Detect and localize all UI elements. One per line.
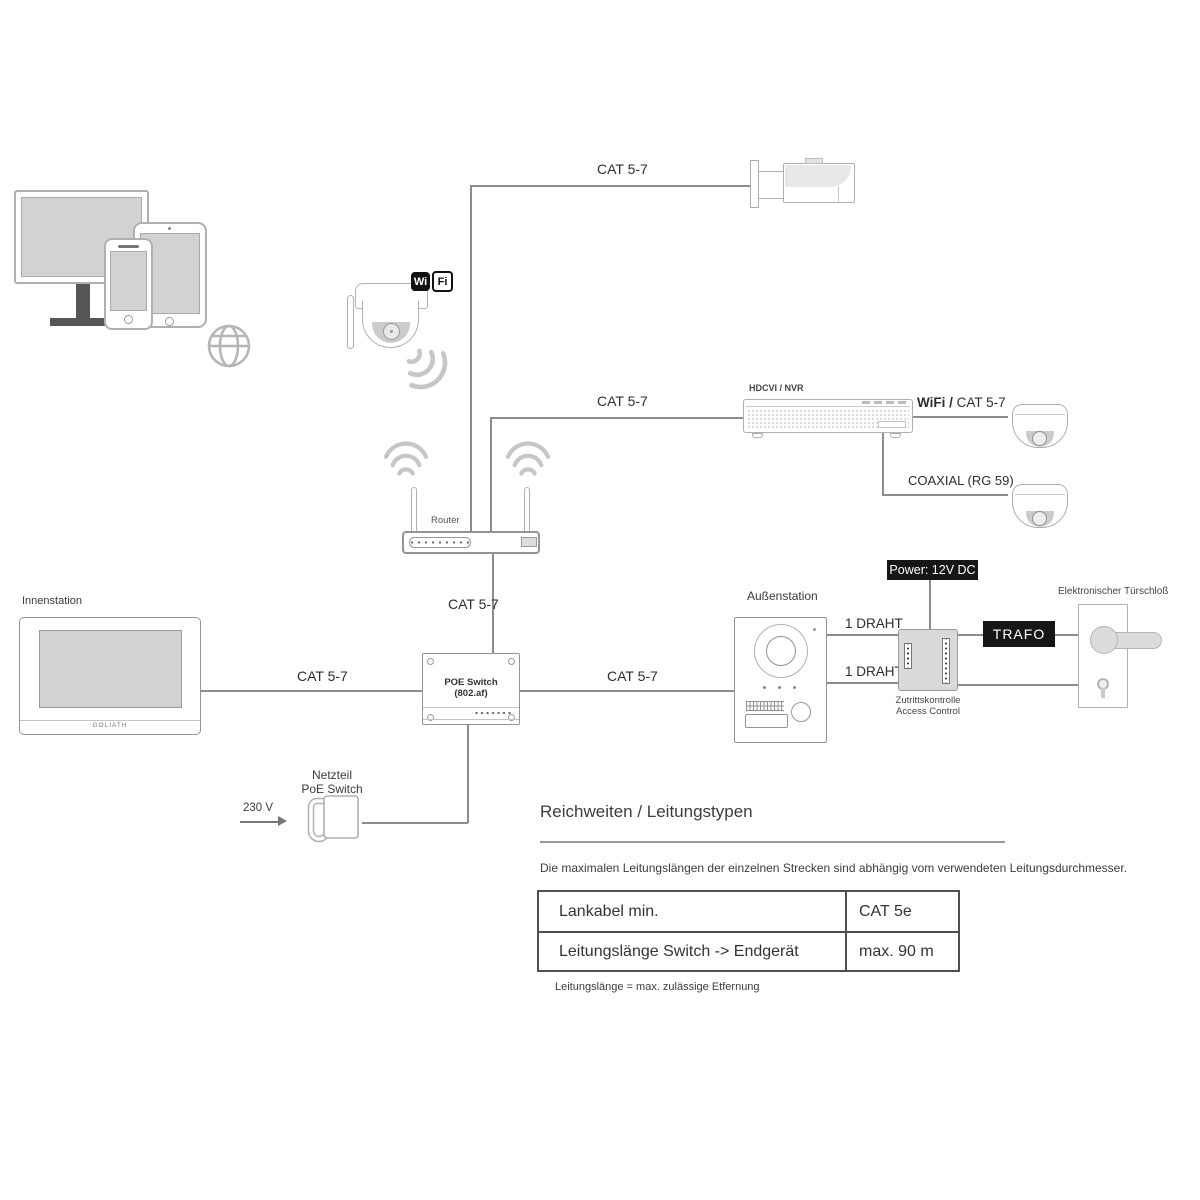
bullet-camera-top-knob — [805, 158, 823, 164]
label-cat57-top: CAT 5-7 — [597, 161, 648, 177]
dome2-cap-line — [1015, 494, 1065, 495]
cable-poe-to-psu-vertical — [467, 725, 469, 823]
wire-trafo-to-lock — [1055, 634, 1078, 636]
table-row2-label: Leitungslänge Switch -> Endgerät — [559, 943, 799, 961]
outdoor-station-dot1 — [763, 686, 766, 689]
keyhole-stem — [1101, 688, 1105, 698]
label-cat57-mid: CAT 5-7 — [597, 393, 648, 409]
indoor-station-brand: GOLIATH — [60, 722, 160, 729]
wifi-waves-left-icon — [381, 441, 431, 481]
label-cat57-outdoor: CAT 5-7 — [607, 668, 658, 684]
label-draht-2: 1 DRAHT — [845, 664, 903, 679]
access-control-label-de: Zutrittskontrolle — [880, 695, 976, 706]
section-description: Die maximalen Leitungslängen der einzeln… — [540, 861, 1127, 875]
dome2-lens — [1032, 511, 1047, 526]
access-control-label-en: Access Control — [880, 706, 976, 717]
poe-switch-label-1: POE Switch — [422, 677, 520, 688]
poe-divider-bottom — [423, 719, 519, 720]
poe-screw-tl — [427, 658, 434, 665]
poe-port-dots — [472, 709, 514, 717]
indoor-station-screen — [39, 630, 182, 708]
wifi-badge-fi: Fi — [432, 271, 453, 292]
nvr-front-line — [746, 406, 910, 407]
outdoor-station-dot3 — [793, 686, 796, 689]
nvr-foot-left — [752, 433, 763, 438]
wifi-badge-wi: Wi — [411, 272, 430, 291]
indoor-station-divider — [20, 720, 200, 721]
poe-screw-tr — [508, 658, 515, 665]
cable-poe-to-psu-horizontal — [362, 822, 468, 824]
outdoor-station-mic-dot — [813, 628, 816, 631]
outdoor-station-camera-lens — [766, 636, 796, 666]
label-wifi-cat57: WiFi / CAT 5-7 — [917, 395, 1006, 410]
cable-router-to-nvr-vertical — [490, 417, 492, 531]
indoor-station-label: Innenstation — [22, 595, 82, 607]
monitor-stand-neck — [76, 284, 90, 318]
outdoor-station-call-button — [791, 702, 811, 722]
access-control-terminal-left — [904, 643, 912, 669]
voltage-arrow-head — [278, 816, 287, 826]
router-label: Router — [431, 515, 460, 526]
outdoor-station-dot2 — [778, 686, 781, 689]
tablet-home-button — [165, 317, 174, 326]
label-cat57-indoor: CAT 5-7 — [297, 668, 348, 684]
label-wifi-bold: WiFi / — [917, 395, 953, 410]
table-row1-value: CAT 5e — [859, 903, 912, 921]
network-diagram: CAT 5-7 CAT 5-7 CAT 5-7 CAT 5-7 CAT 5-7 … — [0, 0, 1200, 1200]
voltage-label: 230 V — [243, 802, 273, 814]
router-antenna-left — [411, 487, 417, 533]
bullet-camera-arm — [759, 171, 784, 199]
outdoor-station-speaker-grille — [746, 701, 784, 711]
table-row-divider — [539, 931, 958, 933]
trafo-box: TRAFO — [983, 621, 1055, 647]
cable-router-to-bulletcam-horizontal — [470, 185, 752, 187]
nvr-buttons — [878, 421, 906, 428]
outdoor-station-nameplate — [745, 714, 788, 728]
door-lock-label: Elektronischer Türschloß — [1058, 586, 1158, 597]
globe-icon — [206, 323, 252, 369]
wire-accesscontrol-to-lock — [958, 684, 1078, 686]
poe-switch-label-2: (802.af) — [422, 688, 520, 699]
nvr-top-dashes — [862, 401, 906, 404]
label-wifi-cat: CAT 5-7 — [957, 395, 1006, 410]
dome1-cap-line — [1015, 414, 1065, 415]
psu-label-1: Netzteil — [300, 768, 364, 782]
wire-power-to-accesscontrol — [929, 580, 931, 629]
smartphone-screen — [110, 251, 147, 311]
wifi-camera-lens-dot — [390, 330, 393, 333]
spec-table: Lankabel min. CAT 5e Leitungslänge Switc… — [537, 890, 960, 972]
dome1-lens — [1032, 431, 1047, 446]
router-antenna-right — [524, 487, 530, 533]
wire-draht-1 — [827, 634, 898, 636]
wifi-waves-right-icon — [503, 441, 553, 481]
voltage-arrow-shaft — [240, 821, 278, 823]
bullet-camera-bracket — [750, 160, 759, 208]
cable-nvr-down-vertical — [882, 433, 884, 494]
section-title: Reichweiten / Leitungstypen — [540, 802, 753, 822]
access-control-terminal-right — [942, 638, 950, 684]
monitor-stand-base — [50, 318, 112, 326]
section-footnote: Leitungslänge = max. zulässige Etfernung — [555, 981, 760, 993]
label-coaxial: COAXIAL (RG 59) — [908, 473, 1014, 488]
label-draht-1: 1 DRAHT — [845, 616, 903, 631]
router-port — [521, 537, 537, 547]
wifi-camera-antenna — [347, 295, 354, 349]
table-row1-label: Lankabel min. — [559, 903, 659, 921]
poe-divider-top — [423, 707, 519, 708]
power-12v-box: Power: 12V DC — [887, 560, 978, 580]
smartphone-speaker — [118, 245, 139, 248]
wire-draht-2 — [827, 682, 898, 684]
wire-accesscontrol-to-trafo — [958, 634, 983, 636]
door-handle-knob — [1090, 626, 1118, 654]
outdoor-station-label: Außenstation — [747, 589, 818, 603]
cable-nvr-to-dome1 — [913, 416, 1008, 418]
tablet-camera-dot — [168, 227, 171, 230]
bullet-camera-seam — [838, 186, 839, 202]
table-row2-value: max. 90 m — [859, 943, 934, 961]
bullet-camera-hood — [785, 165, 851, 187]
nvr-foot-right — [890, 433, 901, 438]
cable-poe-to-outdoorstation — [520, 690, 734, 692]
cable-indoorstation-to-poe — [201, 690, 422, 692]
psu-adapter-icon — [300, 791, 362, 849]
smartphone-home-button — [124, 315, 133, 324]
label-cat57-router-poe: CAT 5-7 — [448, 596, 499, 612]
cable-router-to-bulletcam-vertical — [470, 185, 472, 531]
cable-router-to-nvr-horizontal — [490, 417, 743, 419]
section-title-rule — [540, 841, 1005, 843]
router-led-strip — [409, 537, 471, 548]
nvr-label: HDCVI / NVR — [749, 383, 804, 393]
cable-coax-to-dome2 — [882, 494, 1008, 496]
